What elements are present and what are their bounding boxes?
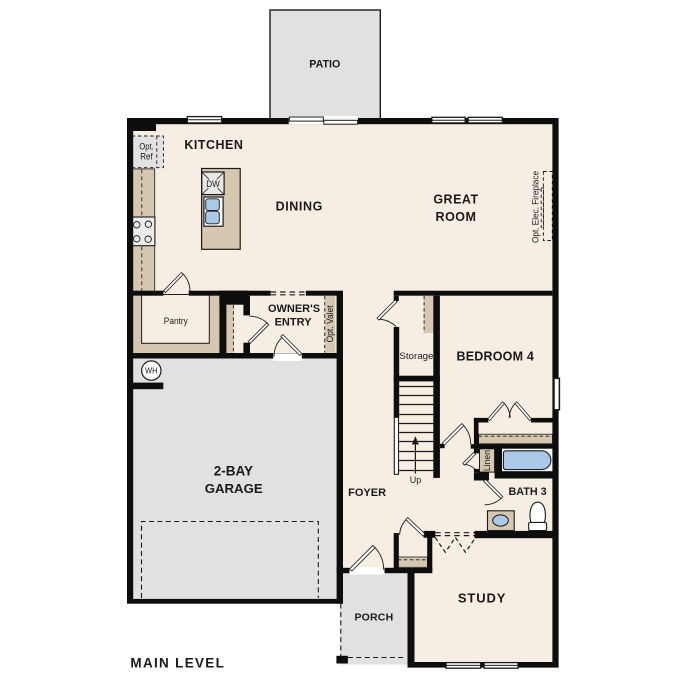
- svg-text:KITCHEN: KITCHEN: [184, 138, 243, 152]
- svg-text:Opt. Elec. Fireplace: Opt. Elec. Fireplace: [530, 171, 541, 243]
- svg-text:Pantry: Pantry: [164, 316, 188, 327]
- svg-text:DW: DW: [206, 179, 220, 189]
- svg-text:FOYER: FOYER: [348, 487, 386, 499]
- svg-text:ROOM: ROOM: [436, 210, 477, 224]
- svg-text:MAIN LEVEL: MAIN LEVEL: [130, 655, 225, 670]
- svg-text:GARAGE: GARAGE: [205, 481, 263, 496]
- svg-text:PORCH: PORCH: [354, 612, 393, 624]
- svg-text:GREAT: GREAT: [433, 192, 478, 206]
- svg-text:Up: Up: [410, 475, 422, 486]
- svg-text:BEDROOM 4: BEDROOM 4: [457, 349, 535, 363]
- svg-text:ENTRY: ENTRY: [275, 316, 313, 328]
- svg-text:STUDY: STUDY: [458, 591, 507, 606]
- svg-text:DINING: DINING: [276, 199, 323, 213]
- svg-text:2-BAY: 2-BAY: [214, 464, 253, 479]
- svg-text:PATIO: PATIO: [309, 58, 340, 70]
- svg-text:Ref: Ref: [140, 152, 153, 162]
- svg-text:BATH 3: BATH 3: [508, 486, 546, 498]
- svg-text:OWNER'S: OWNER'S: [268, 303, 320, 315]
- svg-text:Opt.: Opt.: [139, 142, 154, 152]
- svg-text:Linen: Linen: [482, 450, 492, 471]
- svg-text:WH: WH: [145, 366, 158, 376]
- svg-text:Storage: Storage: [399, 351, 433, 362]
- svg-text:Opt. Valet: Opt. Valet: [325, 305, 336, 342]
